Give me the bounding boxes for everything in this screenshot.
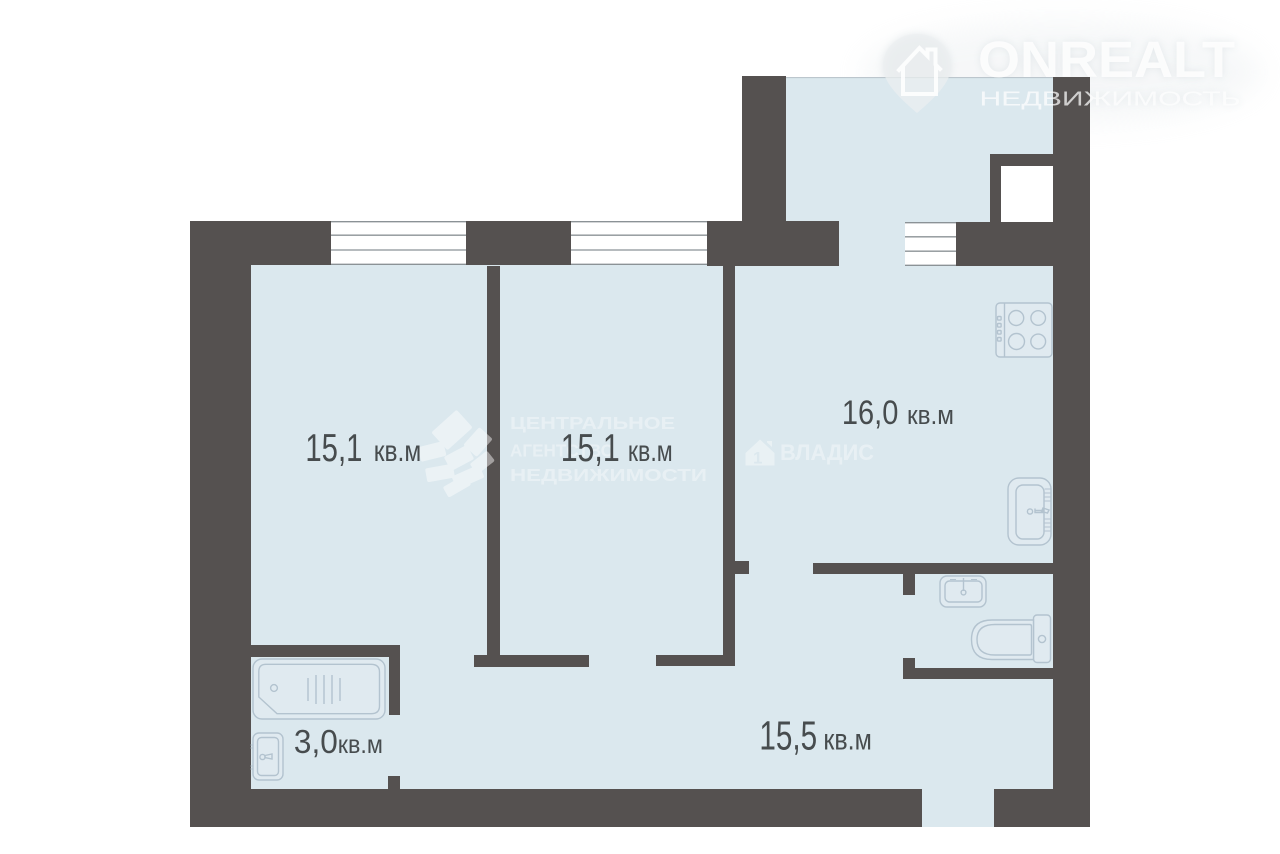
svg-text:15,1: 15,1 xyxy=(305,427,362,470)
svg-text:кв.м: кв.м xyxy=(628,435,673,468)
svg-text:1: 1 xyxy=(753,449,762,468)
svg-text:15,5: 15,5 xyxy=(759,713,817,759)
svg-text:кв.м: кв.м xyxy=(907,402,954,430)
svg-text:кв.м: кв.м xyxy=(374,435,421,468)
svg-text:ONREALT: ONREALT xyxy=(978,31,1235,88)
svg-text:кв.м: кв.м xyxy=(823,724,872,757)
svg-text:15,1: 15,1 xyxy=(561,427,620,470)
svg-text:кв.м: кв.м xyxy=(338,731,383,759)
svg-text:16,0: 16,0 xyxy=(842,394,899,432)
svg-text:3,0: 3,0 xyxy=(294,723,338,760)
svg-text:НЕДВИЖИМОСТЬ: НЕДВИЖИМОСТЬ xyxy=(980,89,1241,111)
svg-text:ВЛАДИС: ВЛАДИС xyxy=(780,440,874,465)
